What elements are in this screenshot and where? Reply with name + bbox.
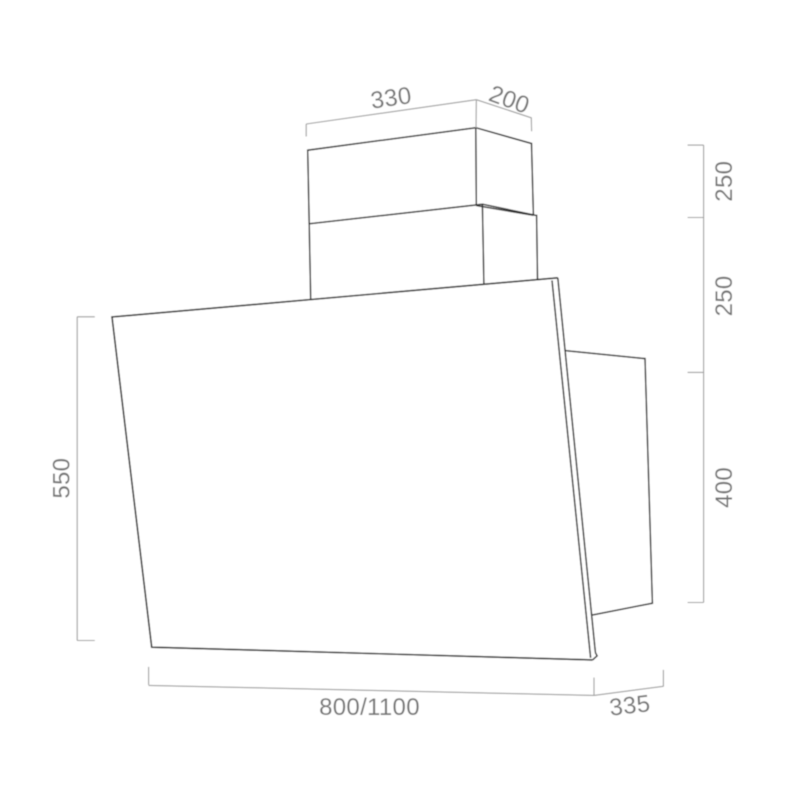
- svg-text:250: 250: [711, 161, 738, 202]
- svg-text:550: 550: [48, 458, 75, 499]
- svg-text:335: 335: [608, 690, 652, 721]
- svg-text:400: 400: [711, 467, 738, 508]
- svg-text:250: 250: [711, 275, 738, 316]
- svg-text:330: 330: [369, 82, 413, 114]
- svg-text:800/1100: 800/1100: [319, 694, 420, 721]
